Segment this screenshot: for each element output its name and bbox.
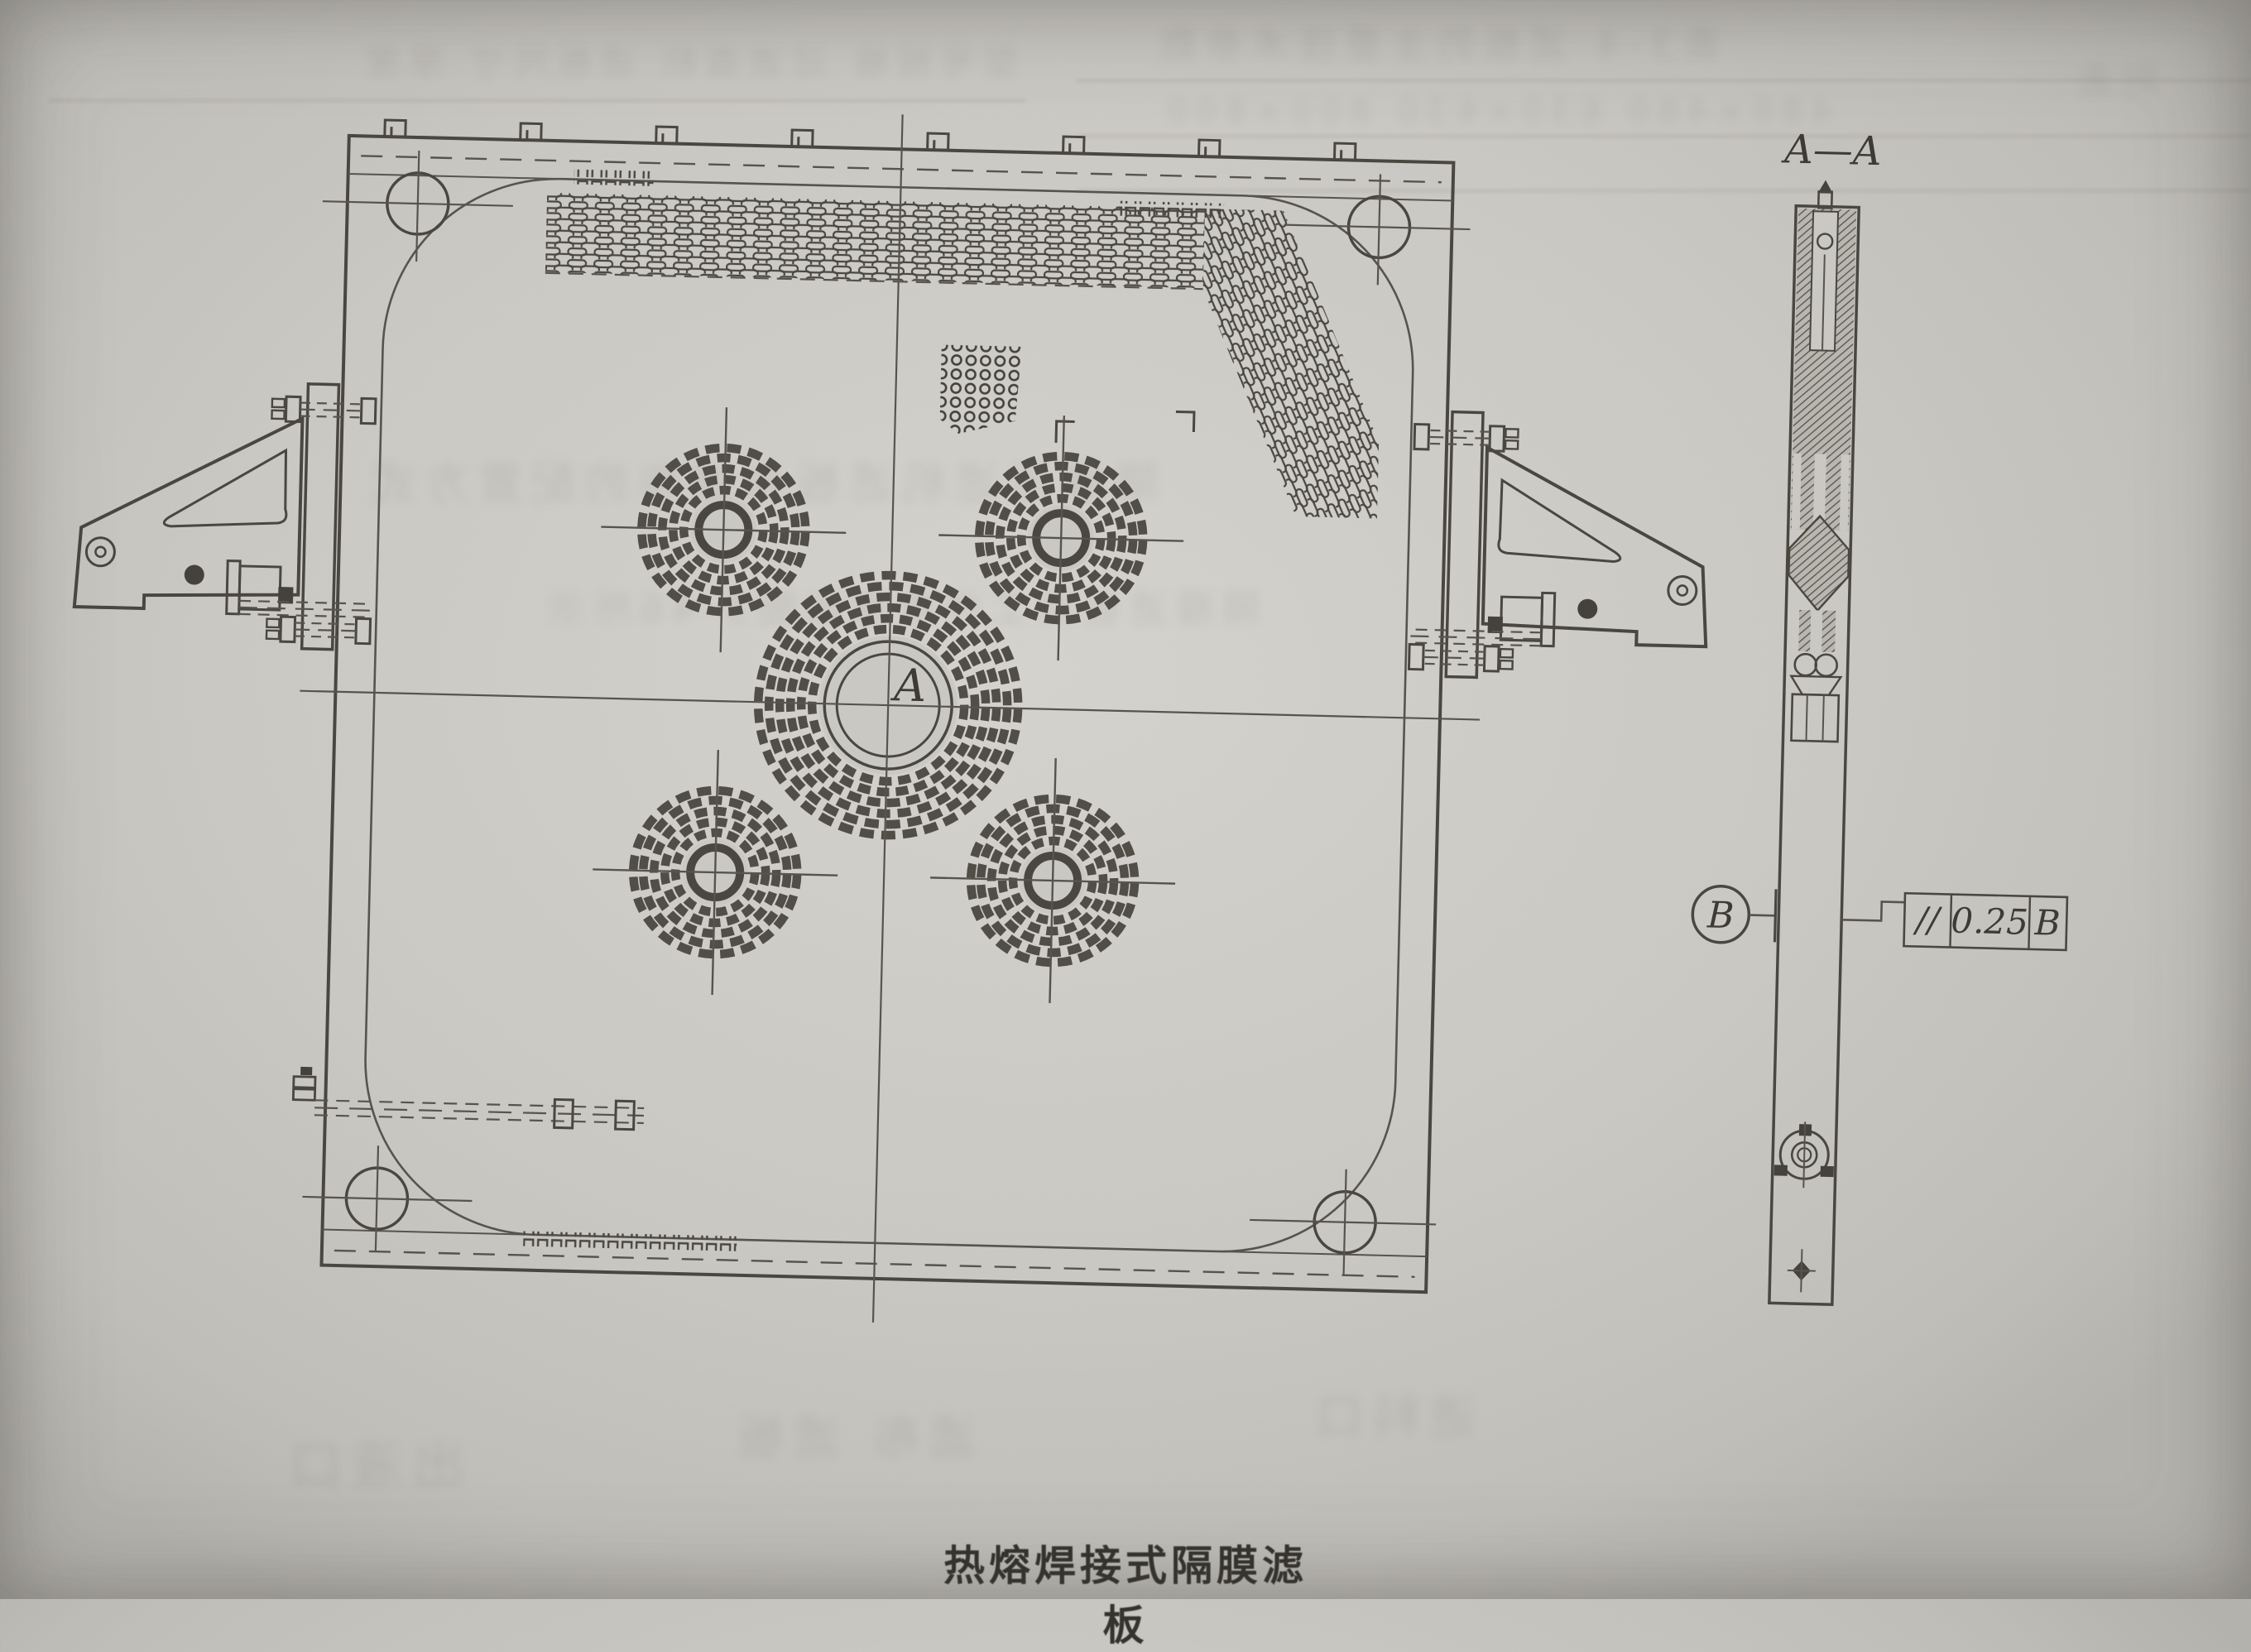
mesh-drape <box>1197 209 1385 518</box>
parallelism-symbol: // <box>1912 899 1942 940</box>
datum-label: B <box>1706 894 1735 937</box>
right-bracket <box>1408 411 1711 684</box>
feature-control-frame: // 0.25 B <box>1841 891 2066 950</box>
left-bracket <box>74 378 377 651</box>
section-label: A—A <box>1781 126 1883 175</box>
center-hole-label: A <box>890 659 928 712</box>
section-knot <box>1789 654 1841 742</box>
datum-feature: B <box>1692 886 1777 944</box>
stitch-strip <box>574 170 653 186</box>
filter-plate-front-view: A <box>57 94 1718 1342</box>
mesh-band <box>545 193 1205 288</box>
technical-drawing: A A—A <box>0 0 2251 1632</box>
section-view: A—A <box>1753 126 1882 1305</box>
port-boss <box>598 405 849 656</box>
tie-bolt <box>293 1067 645 1130</box>
stitch-strip <box>523 1231 737 1251</box>
view-break-mark <box>1056 421 1075 444</box>
figure-caption: 热熔焊接式隔膜滤板 <box>927 1533 1324 1652</box>
section-valve <box>1773 1121 1835 1189</box>
view-break-mark <box>1175 411 1194 432</box>
dot-cluster <box>939 345 1022 435</box>
stitch-strip <box>1118 201 1224 219</box>
section-drain <box>1787 1249 1816 1293</box>
tolerance-datum: B <box>2033 902 2061 944</box>
tolerance-value: 0.25 <box>1951 900 2029 943</box>
